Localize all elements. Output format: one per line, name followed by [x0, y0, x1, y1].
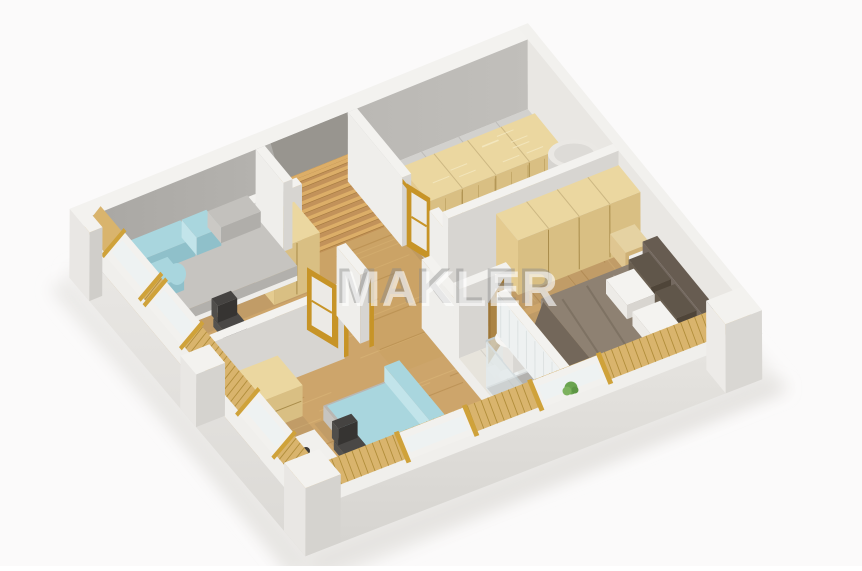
svg-text:MAKLER: MAKLER: [339, 261, 559, 317]
